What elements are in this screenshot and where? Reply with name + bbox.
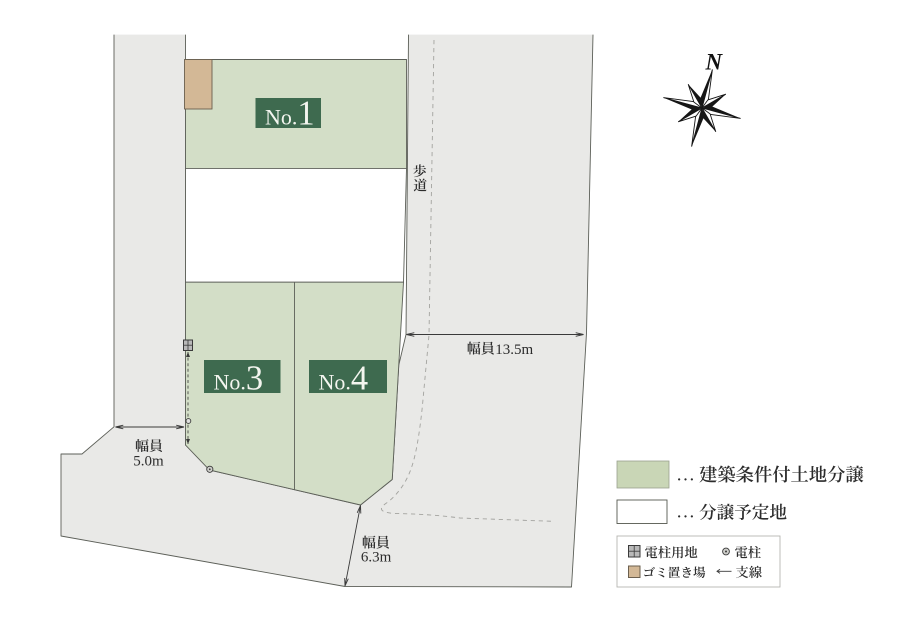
svg-text:N: N [705,50,724,75]
svg-text:5.0m: 5.0m [133,453,164,469]
svg-text:…: … [676,502,695,523]
svg-text:…: … [676,465,695,486]
svg-text:6.3m: 6.3m [361,549,392,565]
svg-text:13.5m: 13.5m [495,342,533,358]
